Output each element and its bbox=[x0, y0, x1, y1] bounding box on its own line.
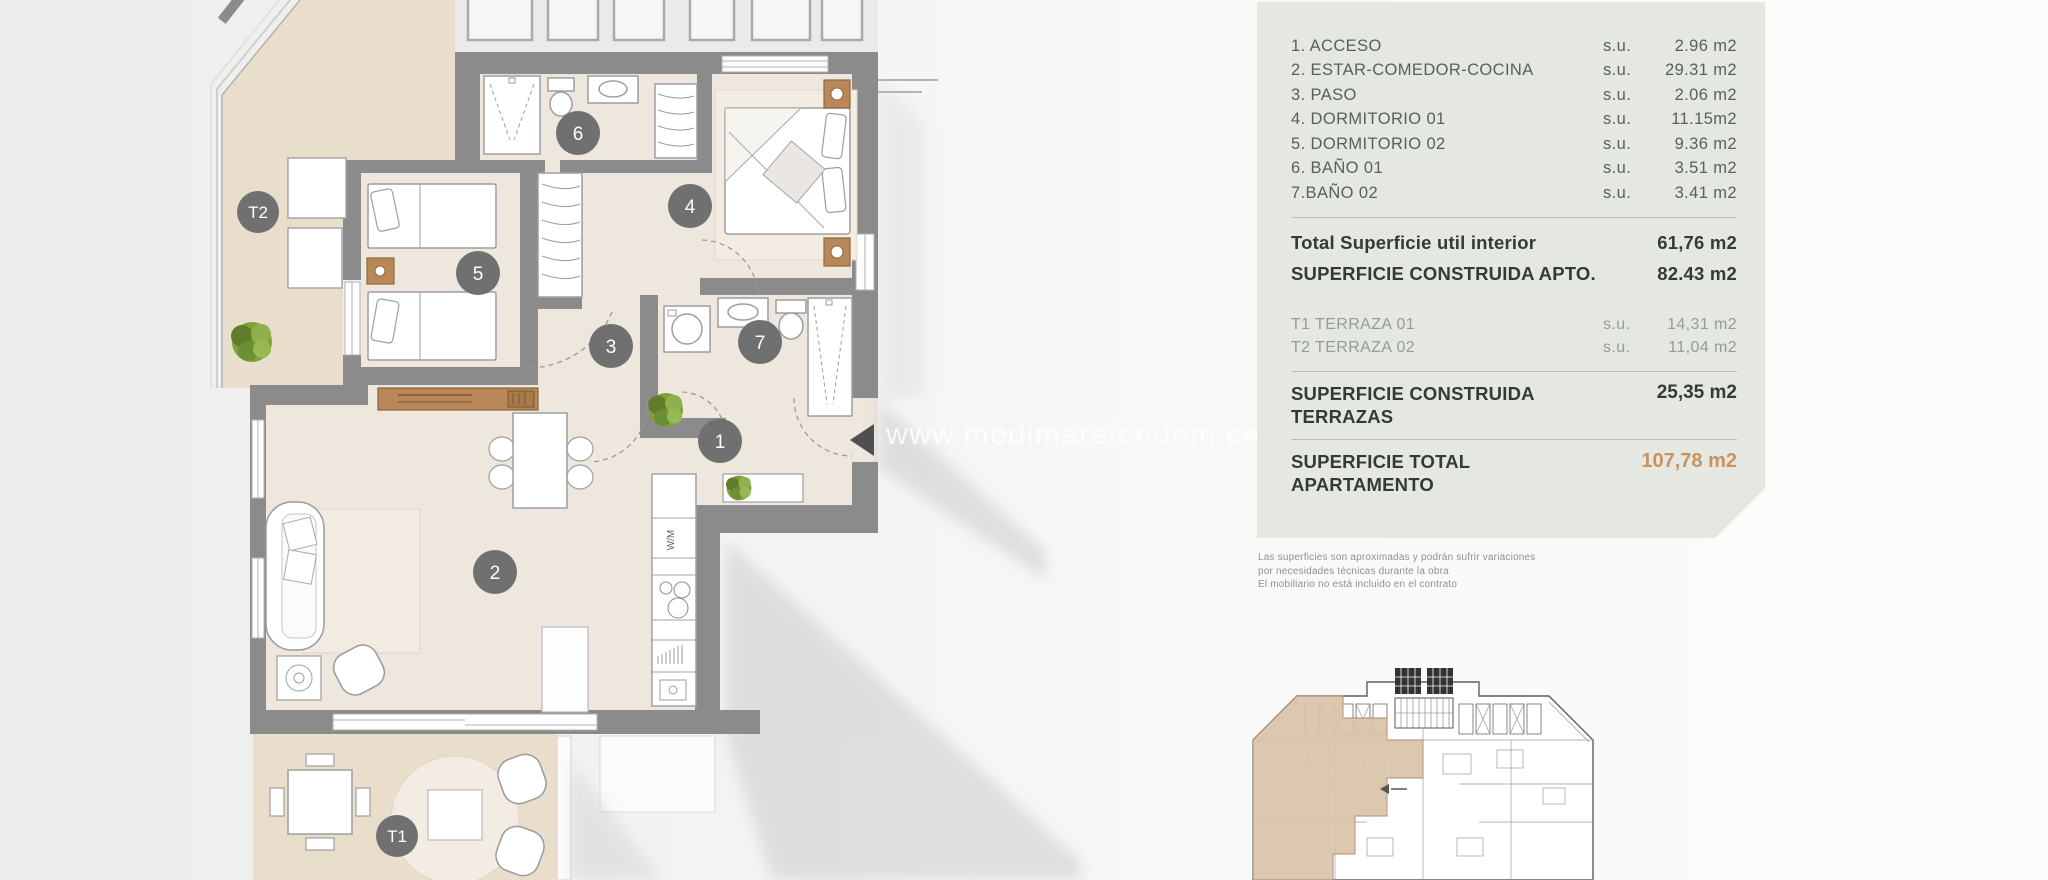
room-badge-3: 3 bbox=[589, 324, 633, 368]
bedroom-1 bbox=[715, 80, 857, 266]
total-construida-row: SUPERFICIE CONSTRUIDA APTO.82.43 m2 bbox=[1291, 259, 1737, 290]
svg-text:6: 6 bbox=[573, 124, 584, 145]
divider bbox=[1291, 217, 1737, 218]
svg-text:7: 7 bbox=[755, 333, 766, 354]
apartment-total-value: 107,78 m2 bbox=[1607, 450, 1737, 496]
room-badge-1: 1 bbox=[698, 419, 742, 463]
room-badge-6: 6 bbox=[556, 111, 600, 155]
disclaimer: Las superficies son aproximadas y podrán… bbox=[1258, 551, 1535, 592]
room-area-list: 1. ACCESOs.u.2.96 m2 2. ESTAR-COMEDOR-CO… bbox=[1291, 34, 1737, 206]
building-key-plan bbox=[1247, 658, 1599, 880]
room-badge-4: 4 bbox=[668, 184, 712, 228]
wardrobe bbox=[538, 173, 582, 297]
room-badge-2: 2 bbox=[473, 550, 517, 594]
room-area-row: 1. ACCESOs.u.2.96 m2 bbox=[1291, 34, 1737, 59]
room-area-row: 7.BAÑO 02s.u.3.41 m2 bbox=[1291, 181, 1737, 206]
svg-text:2: 2 bbox=[490, 563, 501, 584]
room-area-row: 2. ESTAR-COMEDOR-COCINAs.u.29.31 m2 bbox=[1291, 59, 1737, 84]
apartment-floorplan: W/M bbox=[0, 0, 1250, 880]
room-area-row: 3. PASOs.u.2.06 m2 bbox=[1291, 83, 1737, 108]
divider bbox=[1291, 439, 1737, 440]
svg-text:5: 5 bbox=[473, 264, 484, 285]
room-badge-5: 5 bbox=[456, 251, 500, 295]
terrace-row: T1 TERRAZA 01s.u.14,31 m2 bbox=[1291, 314, 1737, 337]
svg-text:1: 1 bbox=[715, 432, 726, 453]
surface-area-panel: 1. ACCESOs.u.2.96 m2 2. ESTAR-COMEDOR-CO… bbox=[1257, 2, 1765, 538]
terrace-row: T2 TERRAZA 02s.u.11,04 m2 bbox=[1291, 337, 1737, 360]
svg-text:3: 3 bbox=[606, 337, 617, 358]
svg-text:4: 4 bbox=[685, 197, 696, 218]
terrace-list: T1 TERRAZA 01s.u.14,31 m2 T2 TERRAZA 02s… bbox=[1291, 314, 1737, 360]
svg-text:T1: T1 bbox=[387, 827, 407, 846]
room-area-row: 6. BAÑO 01s.u.3.51 m2 bbox=[1291, 157, 1737, 182]
floorplan-page: W/M bbox=[0, 0, 2048, 880]
room-badge-t1: T1 bbox=[376, 815, 418, 857]
room-badge-7: 7 bbox=[738, 320, 782, 364]
total-util-row: Total Superficie util interior61,76 m2 bbox=[1291, 228, 1737, 259]
totals: Total Superficie util interior61,76 m2 S… bbox=[1291, 228, 1737, 290]
terrace-total-row: SUPERFICIE CONSTRUIDATERRAZAS 25,35 m2 bbox=[1291, 382, 1737, 428]
kitchen-counter: W/M bbox=[652, 474, 696, 706]
apartment-total-row: SUPERFICIE TOTALAPARTAMENTO 107,78 m2 bbox=[1291, 450, 1737, 496]
room-area-row: 4. DORMITORIO 01s.u.11.15m2 bbox=[1291, 108, 1737, 133]
room-badge-t2: T2 bbox=[237, 191, 279, 233]
svg-text:T2: T2 bbox=[248, 203, 268, 222]
room-area-row: 5. DORMITORIO 02s.u.9.36 m2 bbox=[1291, 132, 1737, 157]
washing-machine-label: W/M bbox=[666, 530, 677, 551]
stairs bbox=[1395, 698, 1453, 728]
divider bbox=[1291, 371, 1737, 372]
